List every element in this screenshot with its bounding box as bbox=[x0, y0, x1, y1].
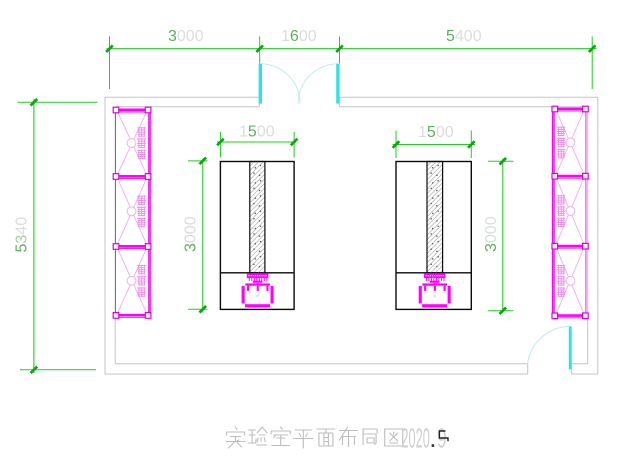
svg-text:1500: 1500 bbox=[418, 124, 454, 141]
svg-text:3000: 3000 bbox=[483, 216, 500, 252]
svg-text:3000: 3000 bbox=[183, 216, 200, 252]
svg-text:1600: 1600 bbox=[281, 28, 317, 45]
svg-text:5340: 5340 bbox=[14, 217, 31, 253]
svg-text:5400: 5400 bbox=[446, 28, 482, 45]
svg-text:1500: 1500 bbox=[239, 124, 275, 141]
svg-text:2020: 2020 bbox=[401, 422, 430, 453]
svg-text:3000: 3000 bbox=[168, 28, 204, 45]
